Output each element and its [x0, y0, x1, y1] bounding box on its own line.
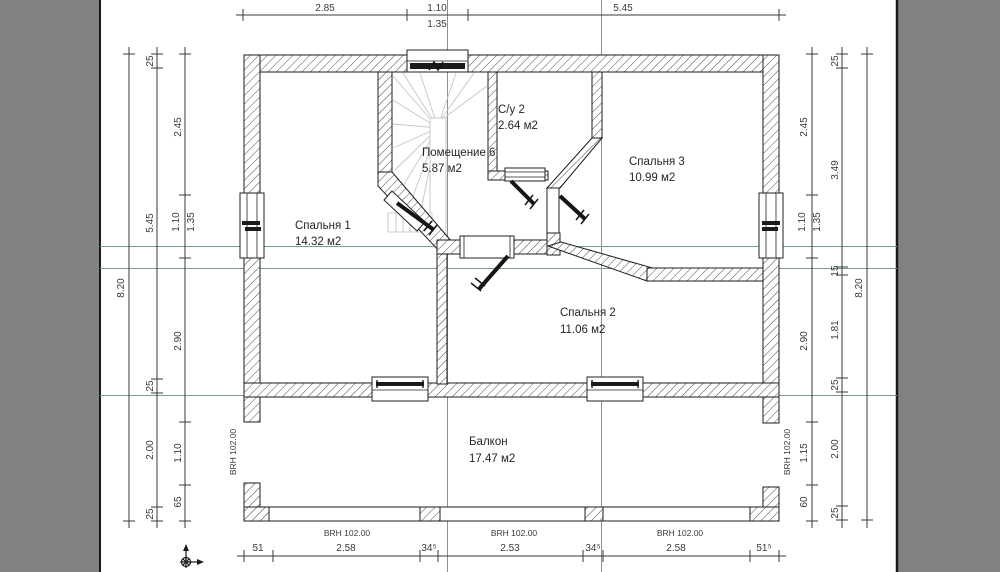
dim-left-mid-4: 2.00 [145, 440, 156, 460]
dim-left-mid-3: 25 [145, 380, 156, 392]
dim-left-mid-5: 25 [145, 508, 156, 520]
window-right-wall [759, 193, 783, 258]
room-name-bedroom3: Спальня 3 [629, 156, 685, 168]
floor-plan: 2.85 1.10 1.35 5.45 51 2.58 34⁵ 2.53 34⁵… [0, 0, 1000, 572]
dim-left-in-4: 1.10 [173, 443, 184, 463]
room-name-balcony: Балкон [469, 436, 508, 448]
dim-left-in-2-alt: 1.35 [186, 212, 197, 232]
dim-top-2-alt: 1.35 [427, 19, 447, 30]
dim-right-mid-2: 3.49 [830, 160, 841, 180]
dim-right-mid-1: 25 [830, 55, 841, 67]
wall-balcony-right-upper [763, 397, 779, 423]
wall-stair-west [378, 72, 392, 172]
wall-balcony-left-upper [244, 397, 260, 422]
room-area-bedroom1: 14.32 м2 [295, 236, 341, 248]
dim-left-in-5: 65 [173, 496, 184, 508]
window-stair-skylight [407, 50, 468, 72]
parapet-pier-2 [420, 507, 440, 521]
dim-right-mid-3: 15 [830, 265, 841, 277]
room-name-bedroom2: Спальня 2 [560, 307, 616, 319]
wall-top [244, 55, 779, 72]
dim-bottom-2: 2.58 [336, 543, 356, 554]
wall-balcony-separation [244, 383, 779, 397]
dim-right-in-4: 1.15 [799, 443, 810, 463]
dim-right-mid-4: 1.81 [830, 320, 841, 340]
parapet-pier-1 [244, 507, 269, 521]
dim-bottom-6: 2.58 [666, 543, 686, 554]
room-area-hall: 5.87 м2 [422, 163, 462, 175]
window-balcony-2 [587, 377, 643, 401]
window-bathroom [505, 168, 545, 181]
dim-bottom-1: 51 [252, 543, 264, 554]
dim-right-outer: 8.20 [854, 278, 865, 298]
parapet-pier-3 [585, 507, 603, 521]
dim-right-mid-5: 25 [830, 379, 841, 391]
brh-label-bottom-2: BRH 102.00 [491, 528, 538, 538]
wall-bedroom2-bedroom3 [647, 268, 763, 281]
dim-right-in-1: 2.45 [799, 117, 810, 137]
room-area-bedroom2: 11.06 м2 [560, 324, 605, 336]
brh-label-bottom-1: BRH 102.00 [324, 528, 371, 538]
dim-left-mid-1: 25 [145, 55, 156, 67]
room-area-balcony: 17.47 м2 [469, 453, 515, 465]
room-name-bathroom: С/у 2 [498, 104, 525, 116]
dim-left-in-1: 2.45 [173, 117, 184, 137]
dim-left-in-2: 1.10 [171, 212, 182, 232]
room-name-bedroom1: Спальня 1 [295, 220, 351, 232]
wall-bathroom-west [488, 72, 497, 180]
dim-top-2: 1.10 [427, 3, 447, 14]
dim-left-in-3: 2.90 [173, 331, 184, 351]
brh-label-left: BRH 102.00 [228, 429, 238, 476]
room-area-bathroom: 2.64 м2 [498, 120, 538, 132]
wall-bedroom1-bedroom2 [437, 254, 447, 384]
dim-bottom-3: 34⁵ [421, 543, 436, 554]
room-name-hall: Помещение 6 [422, 147, 495, 159]
dim-right-mid-7: 25 [830, 507, 841, 519]
dim-right-in-3: 2.90 [799, 331, 810, 351]
dim-right-in-2-alt: 1.35 [812, 212, 823, 232]
brh-label-right: BRH 102.00 [782, 429, 792, 476]
dim-bottom-4: 2.53 [500, 543, 520, 554]
dim-left-mid-2: 5.45 [145, 213, 156, 233]
dim-left-outer: 8.20 [116, 278, 127, 298]
window-balcony-1 [372, 377, 428, 401]
dim-right-in-2: 1.10 [797, 212, 808, 232]
window-left-wall [240, 193, 264, 258]
dim-top-1: 2.85 [315, 3, 335, 14]
room-area-bedroom3: 10.99 м2 [629, 172, 675, 184]
dim-bottom-7: 51⁵ [756, 543, 771, 554]
brh-label-bottom-3: BRH 102.00 [657, 528, 704, 538]
parapet-pier-4 [750, 507, 779, 521]
cad-canvas[interactable]: 2.85 1.10 1.35 5.45 51 2.58 34⁵ 2.53 34⁵… [0, 0, 1000, 572]
dim-right-mid-6: 2.00 [830, 439, 841, 459]
balcony-parapet [244, 507, 779, 521]
wall-bedroom3-west [592, 72, 602, 138]
dim-bottom-5: 34⁵ [585, 543, 600, 554]
dim-top-3: 5.45 [613, 3, 633, 14]
dim-right-in-5: 60 [799, 496, 810, 508]
